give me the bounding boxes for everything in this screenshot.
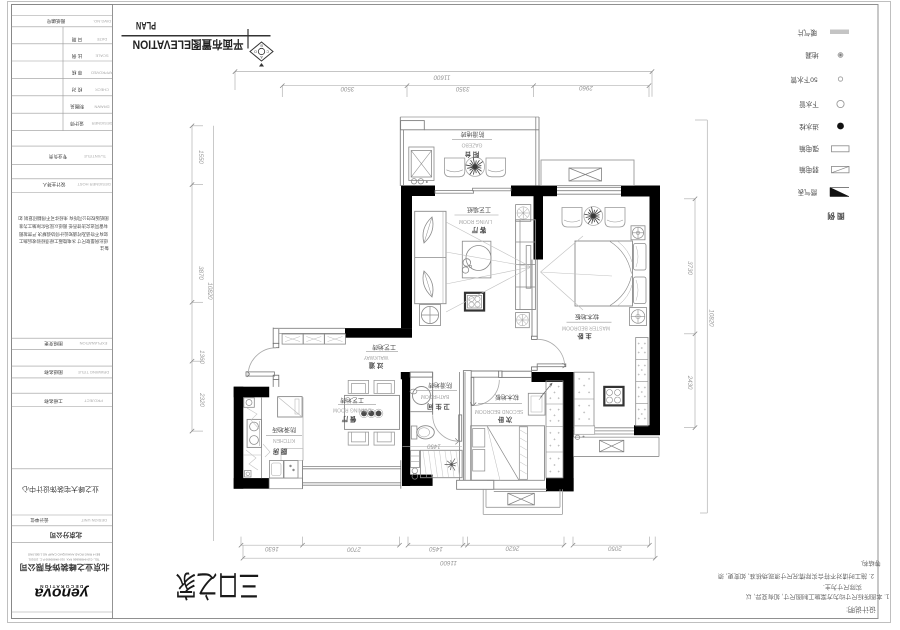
svg-text:11600: 11600 <box>433 74 450 81</box>
svg-text:3730: 3730 <box>686 261 693 275</box>
svg-text:C: C <box>266 49 269 53</box>
svg-text:3870: 3870 <box>197 266 204 280</box>
svg-text:工艺地砖: 工艺地砖 <box>340 396 364 404</box>
svg-text:2700: 2700 <box>347 545 362 552</box>
svg-text:工艺地砖: 工艺地砖 <box>372 343 396 351</box>
svg-text:50下水管: 50下水管 <box>790 75 818 84</box>
svg-text:DATE: DATE <box>96 37 107 42</box>
svg-text:工程名称: 工程名称 <box>44 397 63 404</box>
svg-text:次 卧: 次 卧 <box>497 415 512 424</box>
svg-text:1360: 1360 <box>198 350 205 364</box>
svg-text:软木地板: 软木地板 <box>495 393 519 401</box>
svg-text:DESIGNER: DESIGNER <box>91 121 112 126</box>
svg-text:卫 生 间: 卫 生 间 <box>427 402 450 411</box>
svg-text:纸比例量取尺寸 水电隐蔽工程须经验收后施工: 纸比例量取尺寸 水电隐蔽工程须经验收后施工 <box>18 238 108 245</box>
svg-text:2320: 2320 <box>198 392 205 407</box>
svg-text:燃气表: 燃气表 <box>797 188 817 197</box>
svg-text:图纸编号: 图纸编号 <box>46 18 65 25</box>
svg-text:DESIGN UNIT: DESIGN UNIT <box>81 518 107 523</box>
svg-text:TEL: 010-84886666 FAX: 010-84: TEL: 010-84886666 FAX: 010-84889999 P.C.… <box>28 558 99 562</box>
svg-text:3500: 3500 <box>340 85 354 92</box>
svg-text:设计师: 设计师 <box>70 120 84 127</box>
svg-text:地漏: 地漏 <box>805 51 819 60</box>
svg-text:弱电箱: 弱电箱 <box>799 165 819 174</box>
svg-text:2620: 2620 <box>505 544 520 551</box>
svg-text:CHECK: CHECK <box>95 87 109 92</box>
svg-text:MASTER BEDROOM: MASTER BEDROOM <box>562 325 610 331</box>
svg-text:强电箱: 强电箱 <box>799 145 819 154</box>
svg-text:2430: 2430 <box>686 375 693 390</box>
svg-text:餐 厅: 餐 厅 <box>341 415 356 424</box>
svg-text:审 核: 审 核 <box>71 69 82 76</box>
svg-text:等结构.: 等结构. <box>860 559 881 567</box>
svg-text:日 期: 日 期 <box>71 36 82 42</box>
svg-text:GAZEBO: GAZEBO <box>461 142 482 148</box>
svg-text:KITCHEN: KITCHEN <box>273 437 295 443</box>
svg-text:2960: 2960 <box>579 84 594 91</box>
svg-text:yenova: yenova <box>35 585 90 602</box>
svg-text:北京分公司: 北京分公司 <box>50 531 83 540</box>
svg-text:设计主持人: 设计主持人 <box>42 181 65 188</box>
svg-text:3350: 3350 <box>455 85 469 92</box>
svg-text:10820: 10820 <box>707 309 714 327</box>
svg-text:设计单位: 设计单位 <box>30 517 49 524</box>
svg-text:1550: 1550 <box>197 150 204 164</box>
svg-text:防滑地砖: 防滑地砖 <box>272 426 296 434</box>
svg-text:图纸名称: 图纸名称 <box>44 369 63 376</box>
svg-text:DESIGNER HOST: DESIGNER HOST <box>77 182 111 187</box>
svg-text:EXPLANATION: EXPLANATION <box>80 341 108 346</box>
svg-text:2. 施工时请对不符合实际情况尺寸须现场核准, 如变更, 须: 2. 施工时请对不符合实际情况尺寸须现场核准, 如变更, 须 <box>718 572 874 580</box>
svg-text:防滑地砖: 防滑地砖 <box>428 381 452 389</box>
svg-text:图纸变更: 图纸变更 <box>44 340 63 347</box>
svg-text:DRAWING TITLE: DRAWING TITLE <box>78 370 109 375</box>
svg-text:设计说明:: 设计说明: <box>846 606 876 615</box>
svg-text:进水栓: 进水栓 <box>799 122 819 131</box>
svg-text:BEI 4 RING ROAD ANHUIQIAO CAMP: BEI 4 RING ROAD ANHUIQIAO CAMP NO.1 BEIJ… <box>27 553 100 557</box>
svg-text:阳 台: 阳 台 <box>464 150 479 159</box>
svg-text:SECOND BEDROOM: SECOND BEDROOM <box>475 408 524 414</box>
svg-text:如有不符请及时通知设计师协调解决 严禁按图: 如有不符请及时通知设计师协调解决 严禁按图 <box>18 230 108 237</box>
svg-text:实际尺寸为主.: 实际尺寸为主. <box>823 583 862 591</box>
svg-text:图 例: 图 例 <box>827 211 845 221</box>
svg-text:1630: 1630 <box>265 545 279 552</box>
svg-text:平面布置图ELEVATION: 平面布置图ELEVATION <box>133 37 244 51</box>
svg-text:DWG.NO.: DWG.NO. <box>93 19 111 24</box>
svg-text:A: A <box>260 55 263 59</box>
svg-text:备注: 备注 <box>100 244 109 251</box>
svg-text:业之峰大宅装饰设计中心: 业之峰大宅装饰设计中心 <box>22 485 99 494</box>
svg-text:过 道: 过 道 <box>368 361 383 370</box>
svg-text:APPROVED: APPROVED <box>91 70 113 75</box>
svg-text:图纸版权归公司所有 未经许可不得翻印复制 如: 图纸版权归公司所有 未经许可不得翻印复制 如 <box>18 214 109 221</box>
svg-text:北京业之峰装饰有限公司: 北京业之峰装饰有限公司 <box>20 562 110 572</box>
svg-text:10820: 10820 <box>206 282 213 300</box>
svg-text:B: B <box>260 44 263 48</box>
svg-text:1450: 1450 <box>427 443 441 449</box>
svg-text:DRAWN: DRAWN <box>94 104 109 109</box>
svg-text:PLAN: PLAN <box>136 19 156 31</box>
svg-text:三口之家: 三口之家 <box>176 568 260 601</box>
svg-text:有雷同追究法律责任 图纸以现场实际施工为准: 有雷同追究法律责任 图纸以现场实际施工为准 <box>18 223 108 230</box>
svg-text:暖气片: 暖气片 <box>797 28 817 37</box>
svg-text:软木地板: 软木地板 <box>575 313 599 321</box>
svg-text:WALKWAY: WALKWAY <box>363 354 388 360</box>
svg-text:LIVING ROOM: LIVING ROOM <box>459 218 492 224</box>
svg-text:主 卧: 主 卧 <box>577 332 592 341</box>
svg-text:防滑地砖: 防滑地砖 <box>460 130 484 138</box>
svg-text:PROJECT: PROJECT <box>84 399 103 404</box>
svg-text:工艺墙纸: 工艺墙纸 <box>467 206 491 214</box>
svg-text:下水管: 下水管 <box>799 100 819 109</box>
svg-text:11600: 11600 <box>440 559 457 566</box>
svg-text:客 厅: 客 厅 <box>471 226 487 235</box>
svg-text:1450: 1450 <box>429 545 443 552</box>
svg-text:DINNING ROOM: DINNING ROOM <box>333 407 371 413</box>
svg-text:厨 房: 厨 房 <box>272 447 287 456</box>
svg-text:比 例: 比 例 <box>71 52 82 59</box>
svg-text:TL/XNTITLE: TL/XNTITLE <box>84 154 107 159</box>
svg-text:SCALE: SCALE <box>95 54 108 59</box>
svg-text:专业负责: 专业负责 <box>48 153 67 160</box>
svg-text:校 对: 校 对 <box>71 86 82 93</box>
svg-text:D: D <box>254 49 257 53</box>
svg-text:BATHROOM: BATHROOM <box>421 393 450 399</box>
svg-text:1. 本图所标尺寸均为方案施工制图尺寸, 如有变异, 以: 1. 本图所标尺寸均为方案施工制图尺寸, 如有变异, 以 <box>746 592 890 600</box>
svg-text:制图员: 制图员 <box>70 103 84 110</box>
svg-text:2050: 2050 <box>608 544 623 551</box>
